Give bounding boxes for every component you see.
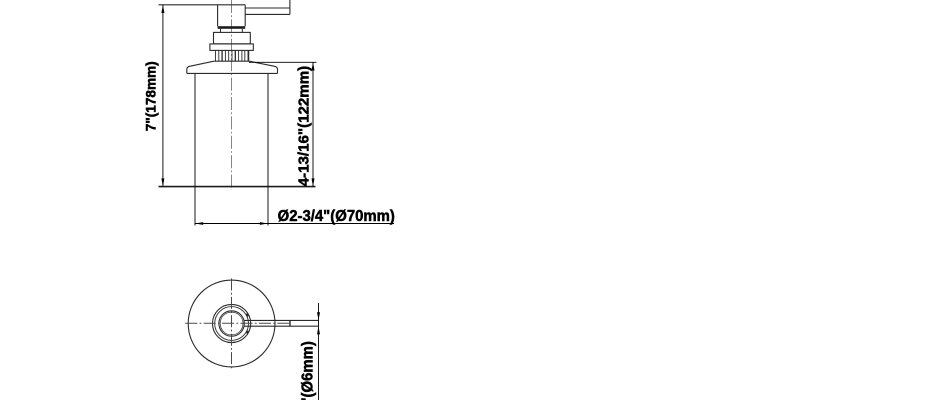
svg-text:4-13/16"(122mm): 4-13/16"(122mm) bbox=[296, 66, 313, 187]
svg-text:7"(178mm): 7"(178mm) bbox=[144, 61, 159, 131]
svg-text:"(Ø6mm): "(Ø6mm) bbox=[300, 341, 317, 400]
svg-text:Ø2-3/4"(Ø70mm): Ø2-3/4"(Ø70mm) bbox=[278, 208, 395, 225]
